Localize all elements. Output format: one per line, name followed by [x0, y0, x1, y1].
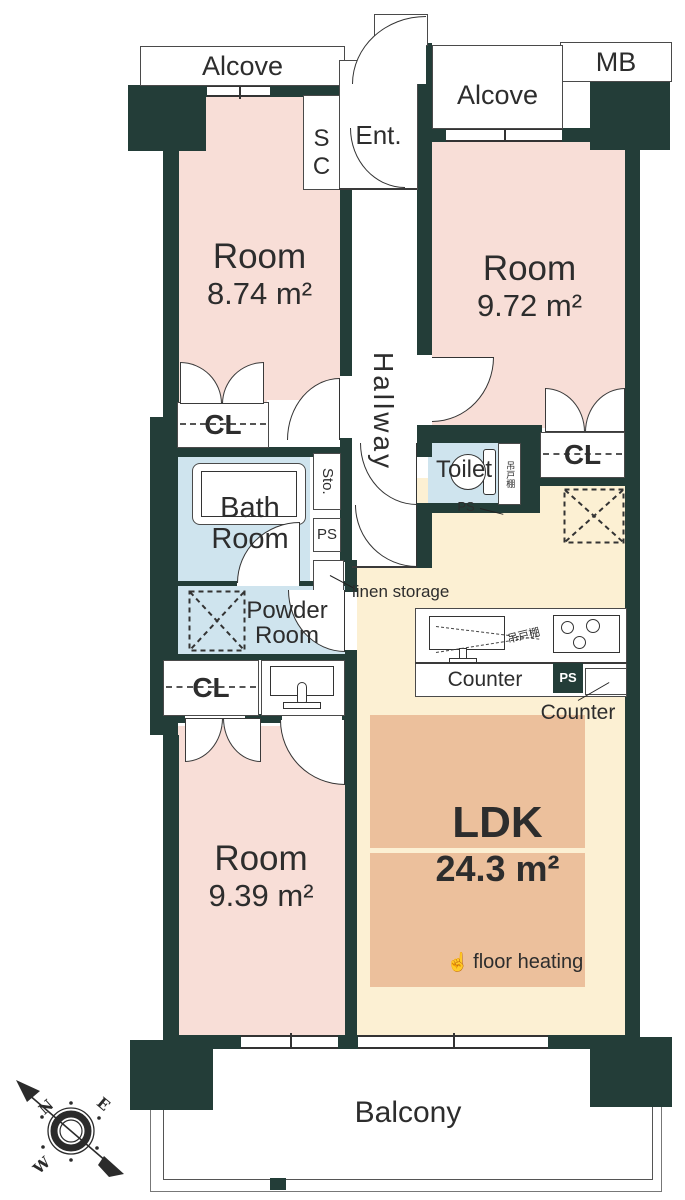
- floor-plan: Balcony: [0, 0, 685, 1200]
- entrance-step-line: [339, 188, 417, 190]
- wall-segment: [417, 43, 432, 355]
- mb-label: MB: [560, 42, 672, 82]
- closet-972-label: CL: [540, 432, 625, 478]
- room-939-name: Room: [177, 840, 345, 878]
- room-972-area: 9.72 m²: [437, 288, 622, 324]
- powder-room-label: Powder Room: [228, 588, 346, 658]
- wall-segment: [562, 128, 626, 142]
- wall-segment: [130, 1040, 213, 1110]
- room-874-area: 8.74 m²: [177, 276, 342, 312]
- wall-segment: [520, 443, 540, 509]
- wall-segment: [540, 478, 625, 486]
- stove-burner-icon: [561, 621, 574, 634]
- hallway-label: Hallway: [362, 252, 404, 572]
- floor-heating-label: ☝ floor heating: [425, 948, 605, 978]
- shoe-closet-label: SC: [305, 118, 338, 188]
- window: [241, 1035, 338, 1049]
- stove-burner-icon: [573, 636, 586, 649]
- ldk-name: LDK: [410, 798, 585, 848]
- compass-south-feather: [98, 1156, 124, 1177]
- bathroom-label: Bath Room: [192, 482, 308, 566]
- wall-segment: [432, 128, 446, 142]
- wall-segment: [625, 82, 640, 1037]
- refrigerator-space-icon: [563, 488, 625, 544]
- alcove-left-label: Alcove: [140, 46, 345, 86]
- window: [358, 1035, 548, 1049]
- compass-e-label: E: [93, 1094, 113, 1115]
- room-874-name: Room: [177, 238, 342, 276]
- balcony-label: Balcony: [163, 1092, 653, 1134]
- ps-kitchen-label: PS: [553, 663, 583, 693]
- window: [446, 128, 562, 142]
- window: [207, 85, 270, 97]
- balcony-divider: [270, 1178, 286, 1190]
- wall-segment: [177, 85, 209, 97]
- entrance-label: Ent.: [339, 118, 418, 154]
- compass-rose: N E W: [12, 1078, 130, 1188]
- wall-segment: [548, 1035, 627, 1049]
- pointing-hand-icon: ☝: [447, 953, 469, 972]
- wall-segment: [163, 1035, 241, 1049]
- washstand-base-icon: [283, 702, 321, 709]
- storage-label: Sto.: [313, 453, 341, 510]
- counter-label: Counter: [417, 663, 553, 697]
- toilet-cabinet-label: 吊戸棚: [498, 445, 521, 503]
- ps-toilet-label: PS: [450, 496, 482, 518]
- toilet-label: Toilet: [426, 450, 502, 490]
- closet-874-label: CL: [177, 402, 269, 448]
- room-939-area: 9.39 m²: [177, 878, 345, 914]
- ps-bath-label: PS: [313, 518, 341, 552]
- stove-burner-icon: [586, 619, 600, 633]
- wall-segment: [417, 425, 542, 443]
- compass-w-label: W: [29, 1152, 55, 1178]
- linen-storage-label: linen storage: [352, 580, 482, 604]
- door-arc-entrance-outer: [352, 16, 426, 84]
- alcove-right-label: Alcove: [432, 62, 563, 129]
- room-972-name: Room: [437, 250, 622, 288]
- counter-side-label: Counter: [528, 700, 628, 726]
- ldk-area: 24.3 m²: [410, 848, 585, 890]
- compass-north-arrow: [16, 1080, 40, 1102]
- wall-segment: [338, 1035, 358, 1049]
- closet-939-label: CL: [163, 660, 259, 716]
